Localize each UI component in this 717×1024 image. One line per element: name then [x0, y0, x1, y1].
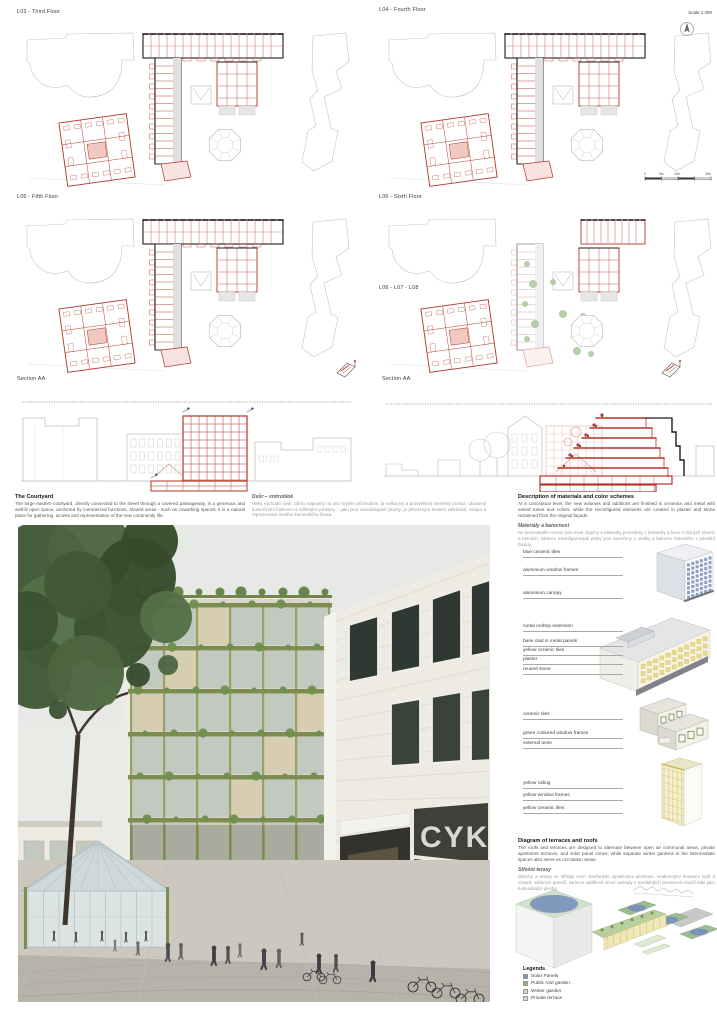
- building-top-bar: [581, 220, 645, 244]
- courtyard-square: [191, 86, 211, 104]
- materials-title: Description of materials and color schem…: [518, 494, 715, 500]
- scale-bar: 05m10m20m: [643, 170, 717, 184]
- section-left-drawing: [21, 402, 351, 491]
- text-block-terraces: Diagram of terraces and roofs The roofs …: [518, 838, 715, 891]
- materials-subbody: Na konceptuální úrovni jsou nové objemy …: [518, 530, 715, 547]
- courtyard-cz-body: Velký východní dvůr, přímo napojený na u…: [252, 501, 486, 518]
- material-label-yellow-window-frames: yellow window frames: [523, 793, 623, 801]
- scale-bar-label: 0: [644, 172, 646, 176]
- legend-label-private-terrace: Private terrace: [531, 996, 562, 1001]
- building-wing: [150, 244, 192, 367]
- section-right-drawing: [384, 404, 714, 492]
- legend: Legends Solar Panels Public roof garden …: [523, 966, 570, 1001]
- building-top-bar: [143, 34, 283, 61]
- tilted-block: [421, 114, 497, 187]
- building-wing: [150, 58, 192, 181]
- building-right-block: [579, 248, 619, 301]
- plan-label-l06-l07-l08: L06 - L07 - L08: [379, 285, 419, 291]
- materials-subtitle: Materiály a barevnost: [518, 523, 715, 529]
- material-label-green-window-frames: green coloured window frames: [523, 731, 623, 739]
- courtyard-square: [191, 272, 211, 290]
- material-label-rooftop-extension: metal rooftop extension: [523, 624, 623, 632]
- tilted-block: [421, 300, 497, 373]
- section-aa-left: [15, 388, 355, 492]
- scale-note: Scale 1:400: [666, 10, 712, 15]
- building-right-block: [217, 248, 257, 301]
- legend-item-public-roof: Public roof garden: [523, 981, 570, 986]
- legend-swatch-solar: [523, 974, 528, 979]
- plan-label-l03: L03 - Third Floor: [17, 9, 60, 15]
- material-label-yellow-ceramic-tiles: yellow ceramic tiles: [523, 648, 623, 656]
- yellow-tall-slab: [662, 758, 702, 826]
- material-label-plaster: plaster: [523, 657, 623, 665]
- scale-bar-label: 10m: [674, 172, 681, 176]
- pavilion-octagon: [209, 129, 240, 160]
- section-aa-right: [380, 388, 717, 492]
- stepped-volumes: [640, 698, 708, 750]
- legend-swatch-private-terrace: [523, 996, 528, 1001]
- building-top-bar: [143, 220, 283, 247]
- legend-item-winter-garden: Winter garden: [523, 989, 570, 994]
- material-label-alu-canopy: aluminium canopy: [523, 591, 623, 599]
- building-right-block: [579, 62, 619, 115]
- axon-blue-tower: [643, 541, 715, 603]
- terraces-title: Diagram of terraces and roofs: [518, 838, 715, 844]
- storefront-sign-text: CYK: [420, 821, 489, 854]
- material-label-blue-ceramic-tiles: blue ceramic tiles: [523, 550, 623, 558]
- courtyard-square: [553, 272, 573, 290]
- scale-bar-label: 20m: [705, 172, 712, 176]
- legend-item-private-terrace: Private terrace: [523, 996, 570, 1001]
- material-label-alu-window-frames: aluminium window frames: [523, 568, 623, 576]
- axon-yellow-tall-slab: [646, 754, 715, 832]
- floor-plan-l04: [377, 10, 717, 192]
- terraces-subtitle: Střešní terasy: [518, 867, 715, 873]
- section-label-right: Section AA: [382, 376, 410, 382]
- floor-plan-l06-l07-l08: [377, 196, 717, 378]
- roof-diagram: [516, 886, 717, 968]
- material-label-yellow-railing: yellow railing: [523, 781, 623, 789]
- terraces-body: The roofs and terraces are designed to a…: [518, 845, 715, 863]
- axon-stepped-volumes: [634, 692, 715, 754]
- legend-swatch-winter-garden: [523, 989, 528, 994]
- text-block-courtyard: The Courtyard The large eastern courtyar…: [15, 494, 245, 519]
- courtyard-title: The Courtyard: [15, 494, 245, 500]
- pavilion-octagon: [571, 129, 602, 160]
- section-key-plan-icon: [334, 358, 358, 380]
- material-label-reused-stone: reused stone: [523, 667, 623, 675]
- plan-label-l06: L06 - Sixth Floor: [379, 194, 422, 200]
- legend-label-public-roof: Public roof garden: [531, 981, 570, 986]
- text-block-materials: Description of materials and color schem…: [518, 494, 715, 547]
- courtyard-render-image: CYK: [18, 525, 490, 1002]
- building-right-block: [217, 62, 257, 115]
- roof-terraces-diagram: [514, 880, 717, 972]
- building-top-bar: [505, 34, 645, 61]
- courtyard-square: [553, 86, 573, 104]
- section-new-building: [151, 416, 247, 491]
- material-label-base-metal-panels: base clad in metal panels: [523, 639, 623, 647]
- blue-tower: [657, 544, 713, 601]
- material-label-yellow-ceramic-tiles: yellow ceramic tiles: [523, 806, 623, 814]
- section-key-plan-icon: [659, 358, 683, 380]
- building-wing: [512, 244, 554, 367]
- courtyard-cz-title: Dvůr – vnitroblok: [252, 494, 486, 500]
- pavilion-octagon: [571, 315, 602, 346]
- north-arrow-icon: [678, 20, 696, 38]
- tilted-block: [59, 114, 135, 187]
- legend-label-solar: Solar Panels: [531, 974, 558, 979]
- tilted-block: [59, 300, 135, 373]
- scale-bar-label: 5m: [659, 172, 664, 176]
- building-wing: [512, 58, 554, 181]
- floor-plan-l03: [15, 10, 355, 192]
- architecture-presentation-board: L03 - Third Floor L04 - Fourth Floor L05…: [0, 0, 717, 1024]
- section-label-left: Section AA: [17, 376, 45, 382]
- terrace-steps: [540, 413, 672, 492]
- legend-swatch-public-roof: [523, 981, 528, 986]
- materials-body: At a conceptual level, the new volumes a…: [518, 501, 715, 519]
- pavilion-octagon: [209, 315, 240, 346]
- legend-title: Legends: [523, 966, 570, 972]
- material-label-ceramic-tiles: ceramic tiles: [523, 712, 623, 720]
- courtyard-body: The large eastern courtyard, directly co…: [15, 501, 245, 519]
- legend-label-winter-garden: Winter garden: [531, 989, 561, 994]
- terraces-subbody: Střechy a terasy se střídají mezi otevře…: [518, 874, 715, 891]
- plan-label-l05: L05 - Fifth Floor: [17, 194, 58, 200]
- plan-label-l04: L04 - Fourth Floor: [379, 7, 426, 13]
- legend-item-solar: Solar Panels: [523, 974, 570, 979]
- material-label-external-tents: external tents: [523, 741, 623, 749]
- text-block-courtyard-czech: Dvůr – vnitroblok Velký východní dvůr, p…: [252, 494, 486, 518]
- floor-plan-l05: [15, 196, 355, 378]
